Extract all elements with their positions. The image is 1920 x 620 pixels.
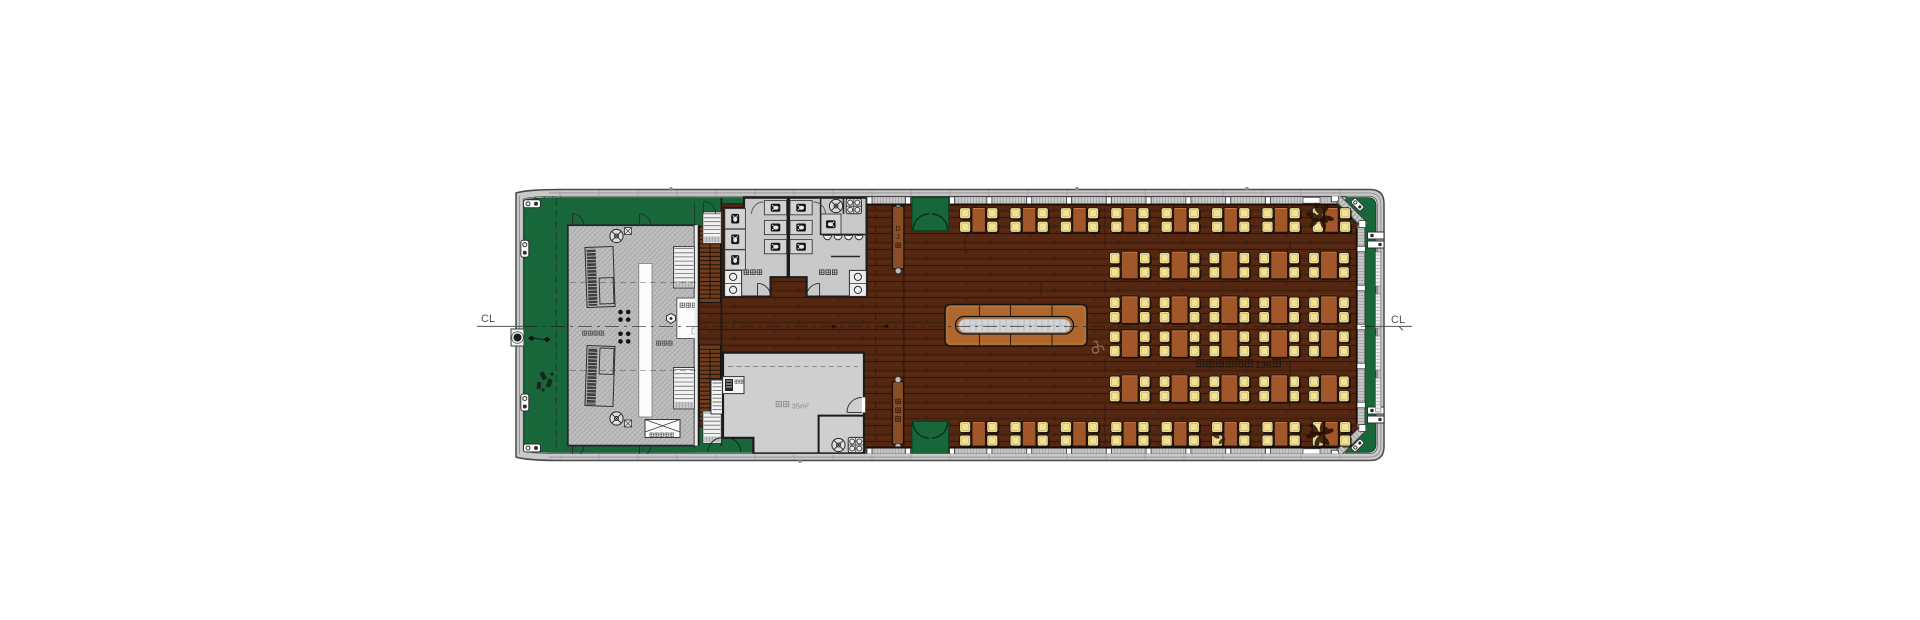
svg-text:136: 136 [1255,360,1272,371]
svg-text:CL: CL [481,313,495,325]
svg-text:D: D [895,226,900,233]
svg-text:35m²: 35m² [792,402,810,411]
svg-text:J: J [896,234,900,241]
svg-text:CL: CL [1391,314,1405,326]
